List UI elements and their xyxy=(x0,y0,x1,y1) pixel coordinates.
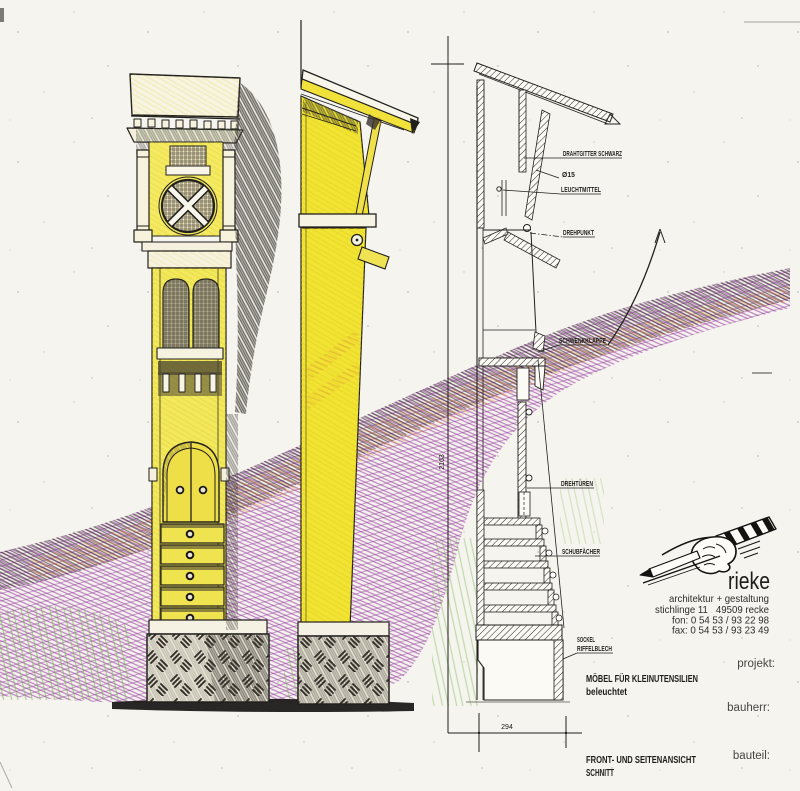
field-projekt: projekt: xyxy=(737,658,775,670)
label-drehpunkt: DREHPUNKT xyxy=(563,228,594,237)
label-durchmesser: Ø15 xyxy=(562,170,575,179)
label-sockel: SOCKEL xyxy=(577,635,595,644)
caption-object-title: MÖBEL FÜR KLEINUTENSILIEN xyxy=(586,672,698,685)
caption-object-subtitle: beleuchtet xyxy=(586,686,627,698)
label-schwenkklappe: SCHWENKKLAPPE xyxy=(559,336,606,345)
architectural-drawing: 2163 294 DRAHTGITTER SCHWARZ Ø15 LEUCHTM… xyxy=(0,0,800,791)
label-drahtgitter: DRAHTGITTER SCHWARZ xyxy=(563,149,622,158)
firm-tagline: architektur + gestaltung xyxy=(669,594,769,605)
label-schubfaecher: SCHUBFÄCHER xyxy=(562,547,600,556)
label-riffelblech: RIFFELBLECH xyxy=(577,644,612,653)
firm-address: stichlinge 11 49509 recke xyxy=(655,605,769,616)
caption-view-title: FRONT- UND SEITENANSICHT xyxy=(586,754,696,766)
firm-name: rieke xyxy=(728,568,770,595)
label-drehtueren: DREHTÜREN xyxy=(561,479,593,488)
scanned-drawing-page: 2163 294 DRAHTGITTER SCHWARZ Ø15 LEUCHTM… xyxy=(0,0,800,791)
field-bauherr: bauherr: xyxy=(727,702,770,714)
caption-view-subtitle: SCHNITT xyxy=(586,767,614,779)
dimension-height: 2163 xyxy=(439,454,446,470)
drawer-stack xyxy=(161,524,224,627)
firm-fax: fax: 0 54 53 / 93 23 49 xyxy=(672,626,769,637)
field-bauteil: bauteil: xyxy=(733,750,770,762)
dimension-width: 294 xyxy=(501,724,513,731)
label-leuchtmittel: LEUCHTMITTEL xyxy=(561,185,601,194)
